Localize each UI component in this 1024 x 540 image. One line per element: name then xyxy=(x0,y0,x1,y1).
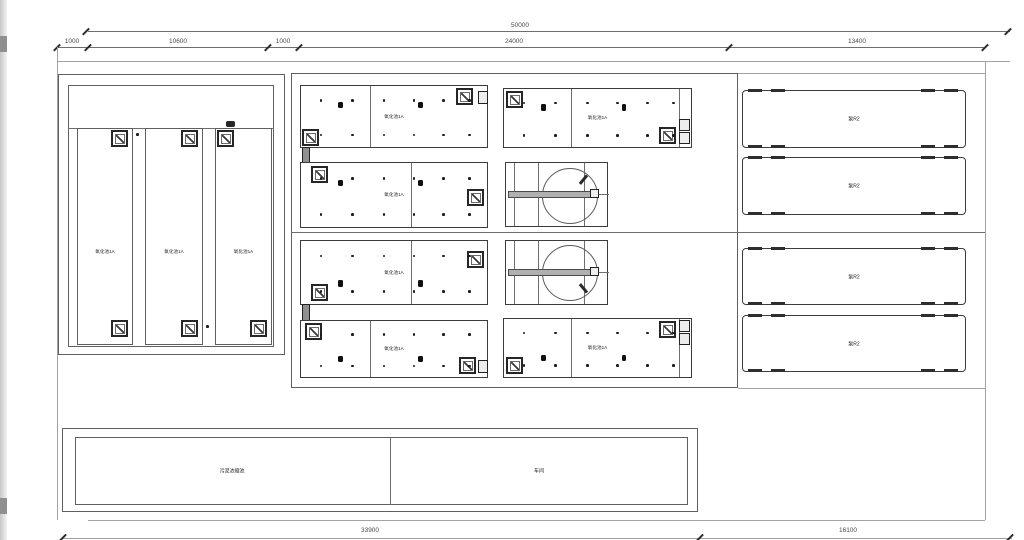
blower-equipment-icon xyxy=(679,333,690,345)
diffuser-dot-icon xyxy=(320,177,323,180)
anchor-dash-icon xyxy=(748,145,762,148)
diffuser-dot-icon xyxy=(523,332,526,335)
diffuser-dot-icon xyxy=(413,365,416,368)
diffuser-dot-icon xyxy=(383,333,386,336)
diffuser-dot-icon xyxy=(442,365,445,368)
hatch-platform-icon xyxy=(506,357,523,374)
anchor-dash-icon xyxy=(921,156,935,159)
diffuser-dot-icon xyxy=(442,333,445,336)
diffuser-dot-icon xyxy=(351,333,354,336)
diffuser-dot-icon xyxy=(442,290,445,293)
aeration-tank-row4-left: 氧化池1A xyxy=(300,320,488,378)
diffuser-dot-icon xyxy=(351,99,354,102)
diffuser-dot-icon xyxy=(468,290,471,293)
diffuser-dot-icon xyxy=(442,213,445,216)
anchor-dash-icon xyxy=(748,247,762,250)
diffuser-dot-icon xyxy=(351,290,354,293)
diffuser-dot-icon xyxy=(383,99,386,102)
dim-seg-label: 16100 xyxy=(839,527,857,534)
diffuser-dot-icon xyxy=(468,134,471,137)
diffuser-dot-icon xyxy=(320,290,323,293)
aeration-tank-row1-right: 氧化池1A xyxy=(503,88,692,148)
anchor-dash-icon xyxy=(944,145,958,148)
tank-label: 氧化池1A xyxy=(384,270,403,276)
anchor-dash-icon xyxy=(748,314,762,317)
diffuser-dot-icon xyxy=(413,290,416,293)
anchor-dash-icon xyxy=(944,247,958,250)
valve-dot-icon xyxy=(338,180,343,187)
anchor-dash-icon xyxy=(748,302,762,305)
valve-dot-icon xyxy=(622,355,627,362)
tank-partition-line xyxy=(370,321,371,377)
edge-mark xyxy=(0,36,7,52)
blower-equipment-icon xyxy=(679,320,690,332)
valve-dot-icon xyxy=(136,133,139,136)
diffuser-dot-icon xyxy=(523,134,526,137)
valve-dot-icon xyxy=(418,280,423,287)
diffuser-dot-icon xyxy=(672,134,675,137)
anchor-dash-icon xyxy=(771,89,785,92)
diffuser-dot-icon xyxy=(351,365,354,368)
hatch-platform-icon xyxy=(305,323,322,340)
diffuser-dot-icon xyxy=(351,255,354,258)
diffuser-dot-icon xyxy=(468,333,471,336)
tank-label: 泵R2 xyxy=(848,116,859,123)
dim-total-label: 50000 xyxy=(511,22,529,29)
aeration-tank-row3-left: 氧化池1A xyxy=(300,240,488,305)
page-edge-shading xyxy=(0,0,7,540)
hatch-platform-icon xyxy=(111,130,128,147)
anchor-dash-icon xyxy=(944,156,958,159)
dim-seg-label: 24000 xyxy=(505,38,523,45)
valve-dot-icon xyxy=(338,280,343,287)
tank-label: 氧化池1A xyxy=(588,345,607,351)
valve-dot-icon xyxy=(541,104,546,111)
valve-dot-icon xyxy=(338,356,343,363)
diffuser-dot-icon xyxy=(523,102,526,105)
tank-partition-line xyxy=(411,241,412,304)
anchor-dash-icon xyxy=(944,302,958,305)
diffuser-dot-icon xyxy=(383,255,386,258)
diffuser-dot-icon xyxy=(646,102,649,105)
diffuser-dot-icon xyxy=(320,134,323,137)
diffuser-dot-icon xyxy=(554,364,557,367)
tank-partition-line xyxy=(571,89,572,147)
bridge-tail-line xyxy=(599,272,609,273)
left-tank-1: 氧化池1A xyxy=(77,128,133,345)
tank-label: 氧化池1A xyxy=(384,114,403,120)
anchor-dash-icon xyxy=(921,314,935,317)
anchor-dash-icon xyxy=(771,369,785,372)
tank-partition-line xyxy=(411,163,412,227)
dim-seg-label: 10600 xyxy=(169,38,187,45)
diffuser-dot-icon xyxy=(383,134,386,137)
hatch-platform-icon xyxy=(659,321,676,338)
hatch-platform-icon xyxy=(302,129,319,146)
cad-site-plan-canvas: 50000 1000 10600 1000 24000 13400 氧化池1A … xyxy=(0,0,1024,540)
anchor-dash-icon xyxy=(921,369,935,372)
anchor-dash-icon xyxy=(944,314,958,317)
blower-equipment-icon xyxy=(679,132,690,144)
site-boundary-right xyxy=(985,61,986,520)
dim-seg-label: 33900 xyxy=(361,527,379,534)
tank-label: 泵R2 xyxy=(848,340,859,347)
anchor-dash-icon xyxy=(771,314,785,317)
diffuser-dot-icon xyxy=(413,99,416,102)
dim-tick xyxy=(696,534,703,540)
aeration-tank-row1-left: 氧化池1A xyxy=(300,85,488,148)
diffuser-dot-icon xyxy=(442,134,445,137)
tank-label: 氧化池1A xyxy=(234,249,253,255)
hatch-platform-icon xyxy=(181,320,198,337)
gate-equipment-icon xyxy=(478,360,488,373)
diffuser-dot-icon xyxy=(468,213,471,216)
anchor-dash-icon xyxy=(921,212,935,215)
anchor-dash-icon xyxy=(748,156,762,159)
bridge-tail-line xyxy=(599,194,609,195)
anchor-dash-icon xyxy=(771,212,785,215)
dim-tick xyxy=(59,534,66,540)
dim-seg-label: 1000 xyxy=(276,38,290,45)
diffuser-dot-icon xyxy=(554,102,557,105)
dim-line-segments xyxy=(57,47,985,48)
right-tank-2: 泵R2 xyxy=(742,157,966,215)
diffuser-dot-icon xyxy=(383,290,386,293)
tank-label: 氧化池1A xyxy=(95,249,114,255)
dim-seg-label: 13400 xyxy=(848,38,866,45)
diffuser-dot-icon xyxy=(586,364,589,367)
diffuser-dot-icon xyxy=(586,332,589,335)
blower-equipment-icon xyxy=(679,119,690,131)
diffuser-dot-icon xyxy=(320,213,323,216)
hatch-platform-icon xyxy=(467,189,484,206)
bottom-building-divider xyxy=(390,437,391,505)
site-boundary-bottom xyxy=(88,520,985,521)
valve-dot-icon xyxy=(622,104,627,111)
diffuser-dot-icon xyxy=(320,255,323,258)
dim-tick xyxy=(1004,28,1011,35)
diffuser-dot-icon xyxy=(616,102,619,105)
anchor-dash-icon xyxy=(771,302,785,305)
aeration-tank-row4-right: 氧化池1A xyxy=(503,318,692,378)
tank-partition-line xyxy=(370,86,371,147)
site-boundary-top xyxy=(57,61,1010,62)
diffuser-dot-icon xyxy=(351,134,354,137)
valve-dot-icon xyxy=(541,355,546,362)
tank-label: 氧化池1A xyxy=(164,249,183,255)
diffuser-dot-icon xyxy=(383,213,386,216)
diffuser-dot-icon xyxy=(442,255,445,258)
room-label: 车间 xyxy=(534,468,544,475)
clarifier-tank-lower xyxy=(505,240,608,305)
anchor-dash-icon xyxy=(771,247,785,250)
valve-dot-icon xyxy=(418,180,423,187)
valve-dot-icon xyxy=(338,102,343,109)
dim-tick xyxy=(1006,534,1013,540)
diffuser-dot-icon xyxy=(468,177,471,180)
anchor-dash-icon xyxy=(748,212,762,215)
diffuser-dot-icon xyxy=(442,177,445,180)
diffuser-dot-icon xyxy=(616,134,619,137)
clarifier-tank-upper xyxy=(505,162,608,227)
dim-seg-label: 1000 xyxy=(65,38,79,45)
right-tank-3: 泵R2 xyxy=(742,248,966,305)
hatch-platform-icon xyxy=(111,320,128,337)
valve-dot-icon xyxy=(418,102,423,109)
diffuser-dot-icon xyxy=(413,333,416,336)
diffuser-dot-icon xyxy=(383,177,386,180)
diffuser-dot-icon xyxy=(413,134,416,137)
anchor-dash-icon xyxy=(944,212,958,215)
diffuser-dot-icon xyxy=(413,255,416,258)
diffuser-dot-icon xyxy=(646,134,649,137)
diffuser-dot-icon xyxy=(672,364,675,367)
dim-tick xyxy=(981,44,988,51)
bridge-drive-icon xyxy=(590,189,599,198)
diffuser-dot-icon xyxy=(468,99,471,102)
diffuser-dot-icon xyxy=(442,99,445,102)
clarifier-bridge xyxy=(508,191,592,198)
left-tank-2: 氧化池1A xyxy=(145,128,203,345)
room-label: 污泥浓缩池 xyxy=(219,468,244,475)
diffuser-dot-icon xyxy=(351,213,354,216)
diffuser-dot-icon xyxy=(616,364,619,367)
diffuser-dot-icon xyxy=(320,333,323,336)
diffuser-dot-icon xyxy=(383,365,386,368)
tank-label: 氧化池1A xyxy=(384,192,403,198)
valve-dot-icon xyxy=(418,356,423,363)
valve-dot-icon xyxy=(206,325,209,328)
tank-label: 泵R2 xyxy=(848,183,859,190)
edge-mark xyxy=(0,498,7,514)
anchor-dash-icon xyxy=(921,302,935,305)
hatch-platform-icon xyxy=(311,166,328,183)
anchor-dash-icon xyxy=(748,89,762,92)
tank-label: 氧化池1A xyxy=(588,115,607,121)
diffuser-dot-icon xyxy=(646,364,649,367)
hatch-platform-icon xyxy=(181,130,198,147)
diffuser-dot-icon xyxy=(586,102,589,105)
tank-label: 泵R2 xyxy=(848,273,859,280)
right-area-top-line xyxy=(738,73,985,74)
middle-divider-line xyxy=(291,232,985,233)
clarifier-bridge xyxy=(508,269,592,276)
diffuser-dot-icon xyxy=(616,332,619,335)
dim-line-total xyxy=(88,31,1010,32)
tank-label: 氧化池1A xyxy=(384,346,403,352)
left-tank-3: 氧化池1A xyxy=(215,128,272,345)
anchor-dash-icon xyxy=(944,369,958,372)
tank-partition-line xyxy=(571,319,572,377)
anchor-dash-icon xyxy=(748,369,762,372)
right-tank-1: 泵R2 xyxy=(742,90,966,148)
hatch-platform-icon xyxy=(250,320,267,337)
diffuser-dot-icon xyxy=(351,177,354,180)
anchor-dash-icon xyxy=(921,145,935,148)
anchor-dash-icon xyxy=(771,145,785,148)
channel-connector xyxy=(302,304,310,321)
anchor-dash-icon xyxy=(944,89,958,92)
diffuser-dot-icon xyxy=(554,332,557,335)
gate-equipment-icon xyxy=(478,91,488,104)
diffuser-dot-icon xyxy=(646,332,649,335)
diffuser-dot-icon xyxy=(672,102,675,105)
diffuser-dot-icon xyxy=(413,177,416,180)
anchor-dash-icon xyxy=(921,89,935,92)
hatch-platform-icon xyxy=(456,88,473,105)
right-tank-4: 泵R2 xyxy=(742,315,966,372)
diffuser-dot-icon xyxy=(523,364,526,367)
right-area-bottom-line xyxy=(738,388,985,389)
anchor-dash-icon xyxy=(771,156,785,159)
diffuser-dot-icon xyxy=(554,134,557,137)
aeration-tank-row2-left: 氧化池1A xyxy=(300,162,488,228)
bottom-building-inner-wall xyxy=(75,437,688,505)
anchor-dash-icon xyxy=(921,247,935,250)
hatch-platform-icon xyxy=(217,130,234,147)
diffuser-dot-icon xyxy=(320,99,323,102)
hatch-platform-icon xyxy=(506,91,523,108)
diffuser-dot-icon xyxy=(413,213,416,216)
hatch-platform-icon xyxy=(467,251,484,268)
diffuser-dot-icon xyxy=(586,134,589,137)
pump-dot-icon xyxy=(226,121,235,127)
dim-line-bottom xyxy=(63,538,1012,539)
diffuser-dot-icon xyxy=(320,365,323,368)
bridge-drive-icon xyxy=(590,267,599,276)
